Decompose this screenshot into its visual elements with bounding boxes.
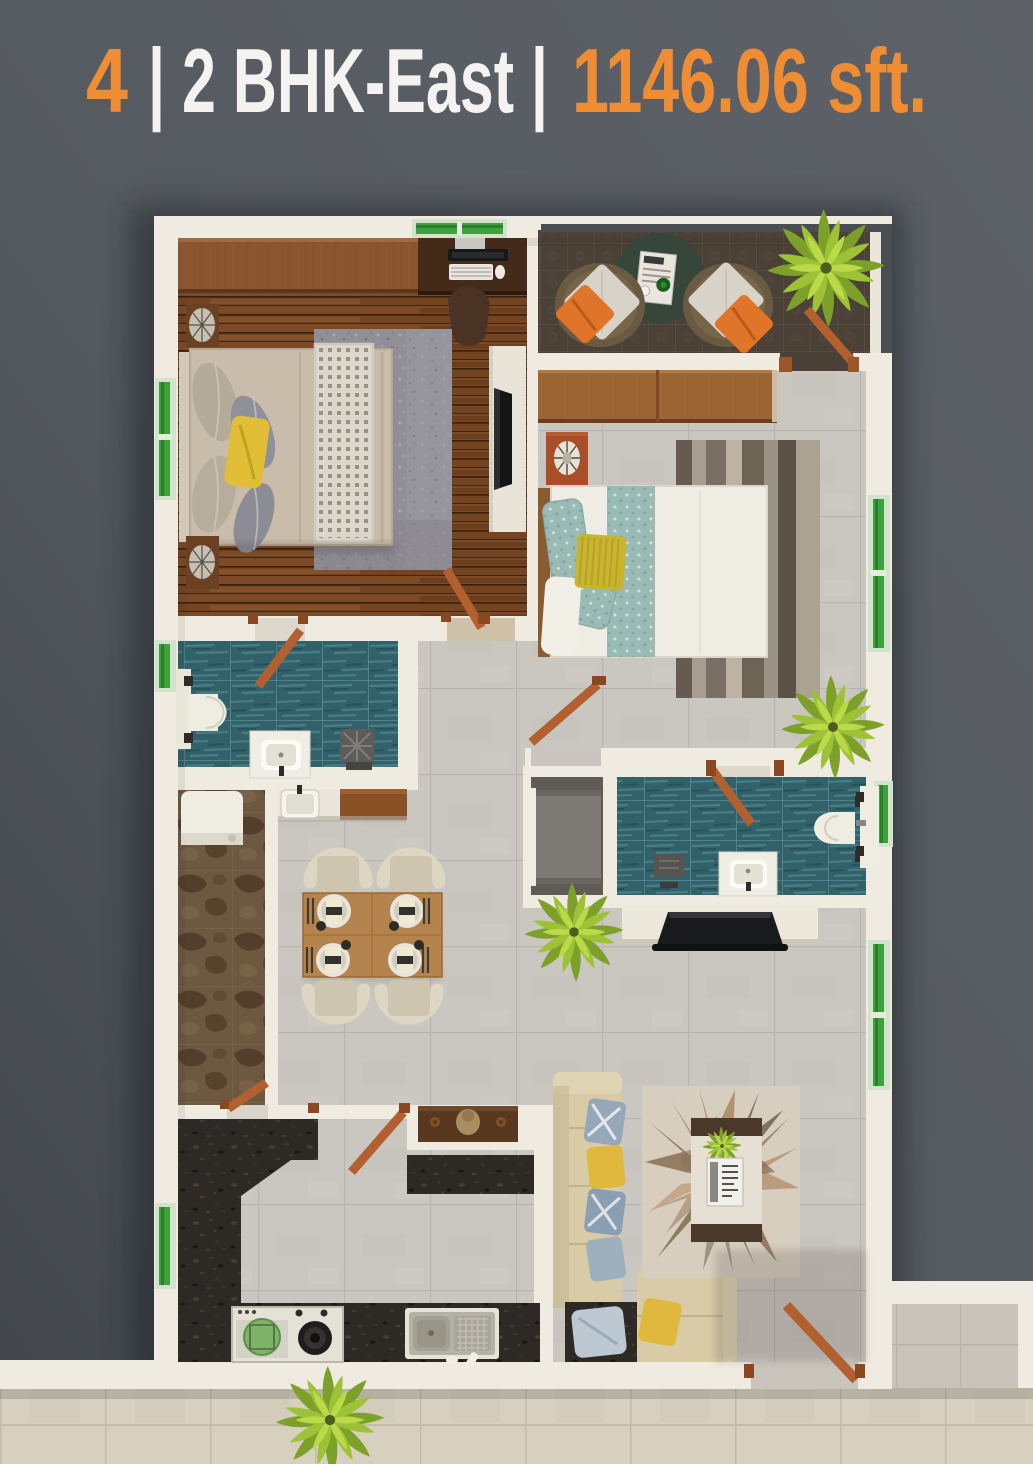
svg-text:4: 4 — [86, 31, 128, 132]
svg-text:1146.06 sft.: 1146.06 sft. — [572, 31, 927, 132]
svg-text:| 2 BHK-East |: | 2 BHK-East | — [148, 31, 548, 133]
